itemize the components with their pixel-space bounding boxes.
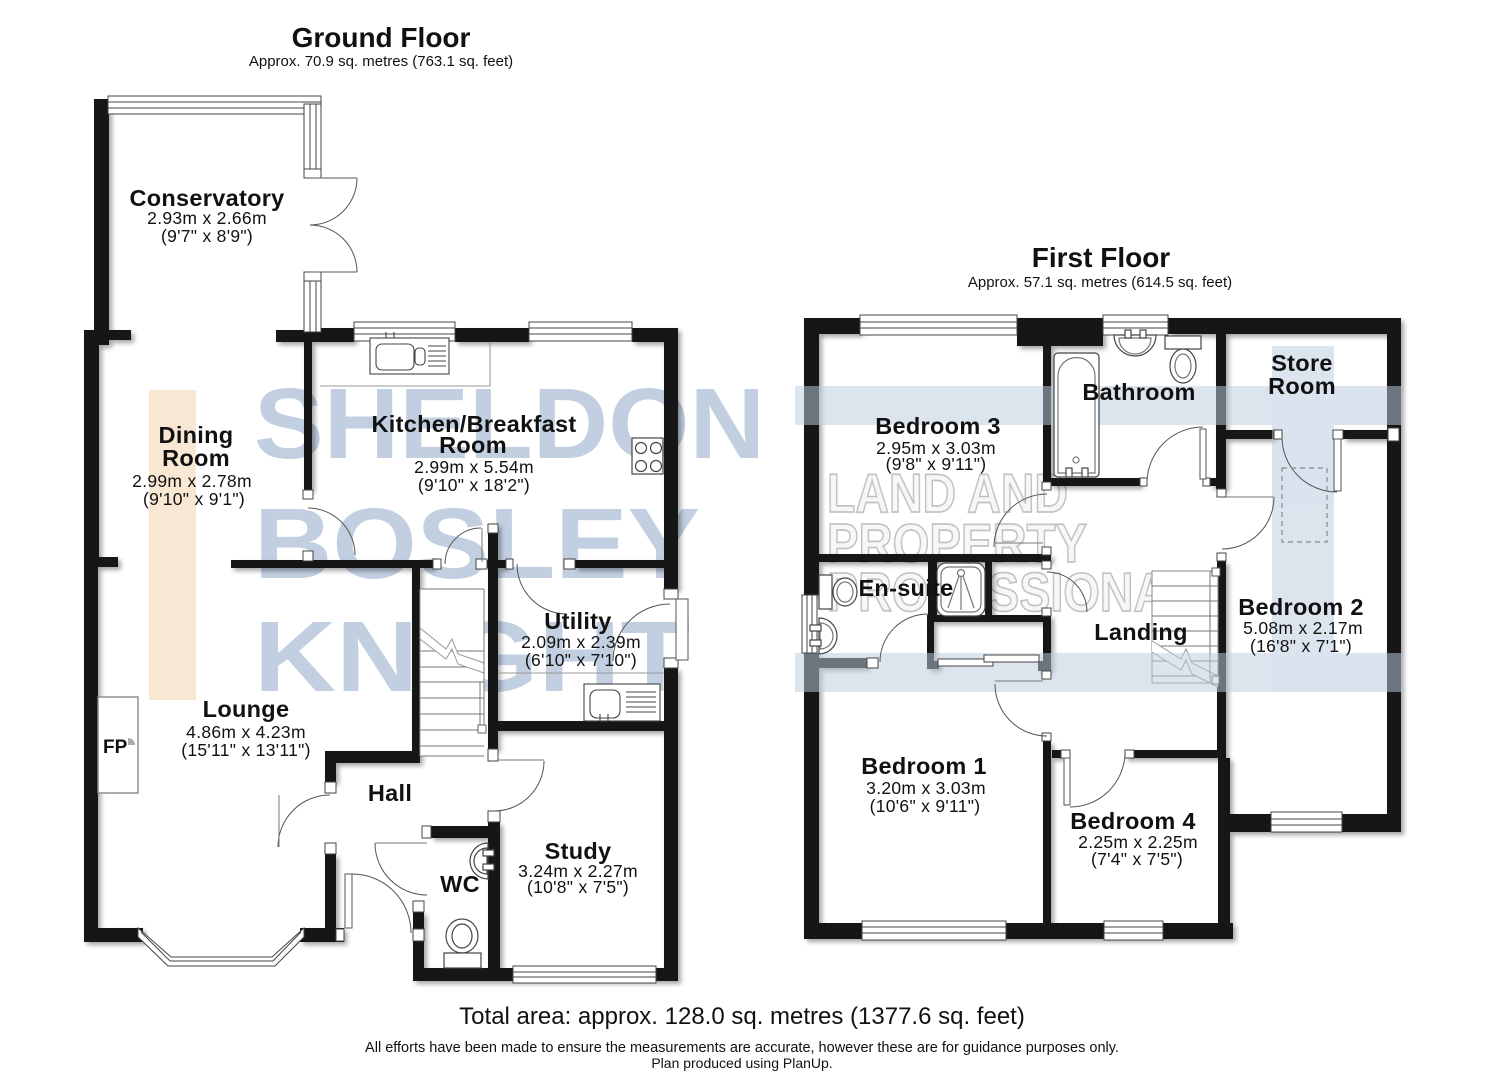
svg-text:Approx. 57.1 sq. metres (614.5: Approx. 57.1 sq. metres (614.5 sq. feet) xyxy=(968,274,1232,291)
svg-text:Lounge: Lounge xyxy=(203,696,290,722)
svg-text:(10'6" x 9'11"): (10'6" x 9'11") xyxy=(870,796,981,816)
svg-text:Bedroom 2: Bedroom 2 xyxy=(1238,594,1363,620)
svg-text:Bathroom: Bathroom xyxy=(1082,379,1195,405)
svg-text:(15'11" x 13'11"): (15'11" x 13'11") xyxy=(181,740,311,760)
svg-text:(9'7" x 8'9"): (9'7" x 8'9") xyxy=(161,226,253,246)
svg-text:Bedroom 4: Bedroom 4 xyxy=(1070,808,1195,834)
svg-text:2.99m x 2.78m: 2.99m x 2.78m xyxy=(132,471,252,491)
svg-text:First Floor: First Floor xyxy=(1032,242,1171,273)
svg-text:Plan produced using PlanUp.: Plan produced using PlanUp. xyxy=(651,1055,832,1071)
svg-text:(7'4" x 7'5"): (7'4" x 7'5") xyxy=(1091,849,1183,869)
svg-text:4.86m x 4.23m: 4.86m x 4.23m xyxy=(186,722,306,742)
svg-text:2.93m x 2.66m: 2.93m x 2.66m xyxy=(147,208,267,228)
svg-text:5.08m x 2.17m: 5.08m x 2.17m xyxy=(1243,618,1363,638)
svg-text:(9'10" x 18'2"): (9'10" x 18'2") xyxy=(418,475,530,495)
svg-text:BOSLEY: BOSLEY xyxy=(254,488,700,600)
svg-text:FP: FP xyxy=(103,737,128,758)
svg-text:2.99m x 5.54m: 2.99m x 5.54m xyxy=(414,457,534,477)
svg-text:(10'8" x 7'5"): (10'8" x 7'5") xyxy=(527,877,629,897)
svg-text:Landing: Landing xyxy=(1094,619,1187,645)
svg-text:(6'10" x 7'10"): (6'10" x 7'10") xyxy=(525,650,637,670)
svg-text:Bedroom 1: Bedroom 1 xyxy=(861,753,986,779)
svg-text:Total area: approx. 128.0 sq.: Total area: approx. 128.0 sq. metres (13… xyxy=(459,1003,1025,1030)
svg-text:Ground Floor: Ground Floor xyxy=(292,22,471,53)
svg-text:2.09m x 2.39m: 2.09m x 2.39m xyxy=(521,632,641,652)
svg-text:Room: Room xyxy=(439,432,507,458)
svg-text:All efforts have been made to: All efforts have been made to ensure the… xyxy=(365,1040,1119,1056)
svg-text:(16'8" x 7'1"): (16'8" x 7'1") xyxy=(1250,636,1352,656)
svg-text:Room: Room xyxy=(162,445,230,471)
svg-text:Utility: Utility xyxy=(544,608,611,634)
svg-text:3.20m x 3.03m: 3.20m x 3.03m xyxy=(866,778,986,798)
svg-text:WC: WC xyxy=(440,871,480,897)
svg-text:Bedroom 3: Bedroom 3 xyxy=(875,413,1000,439)
svg-text:Room: Room xyxy=(1268,373,1336,399)
svg-text:(9'10" x 9'1"): (9'10" x 9'1") xyxy=(143,489,245,509)
svg-text:Hall: Hall xyxy=(368,780,412,806)
svg-text:(9'8" x 9'11"): (9'8" x 9'11") xyxy=(886,454,987,474)
svg-text:Approx. 70.9 sq. metres (763.1: Approx. 70.9 sq. metres (763.1 sq. feet) xyxy=(249,53,513,70)
svg-text:En-suite: En-suite xyxy=(858,575,953,601)
